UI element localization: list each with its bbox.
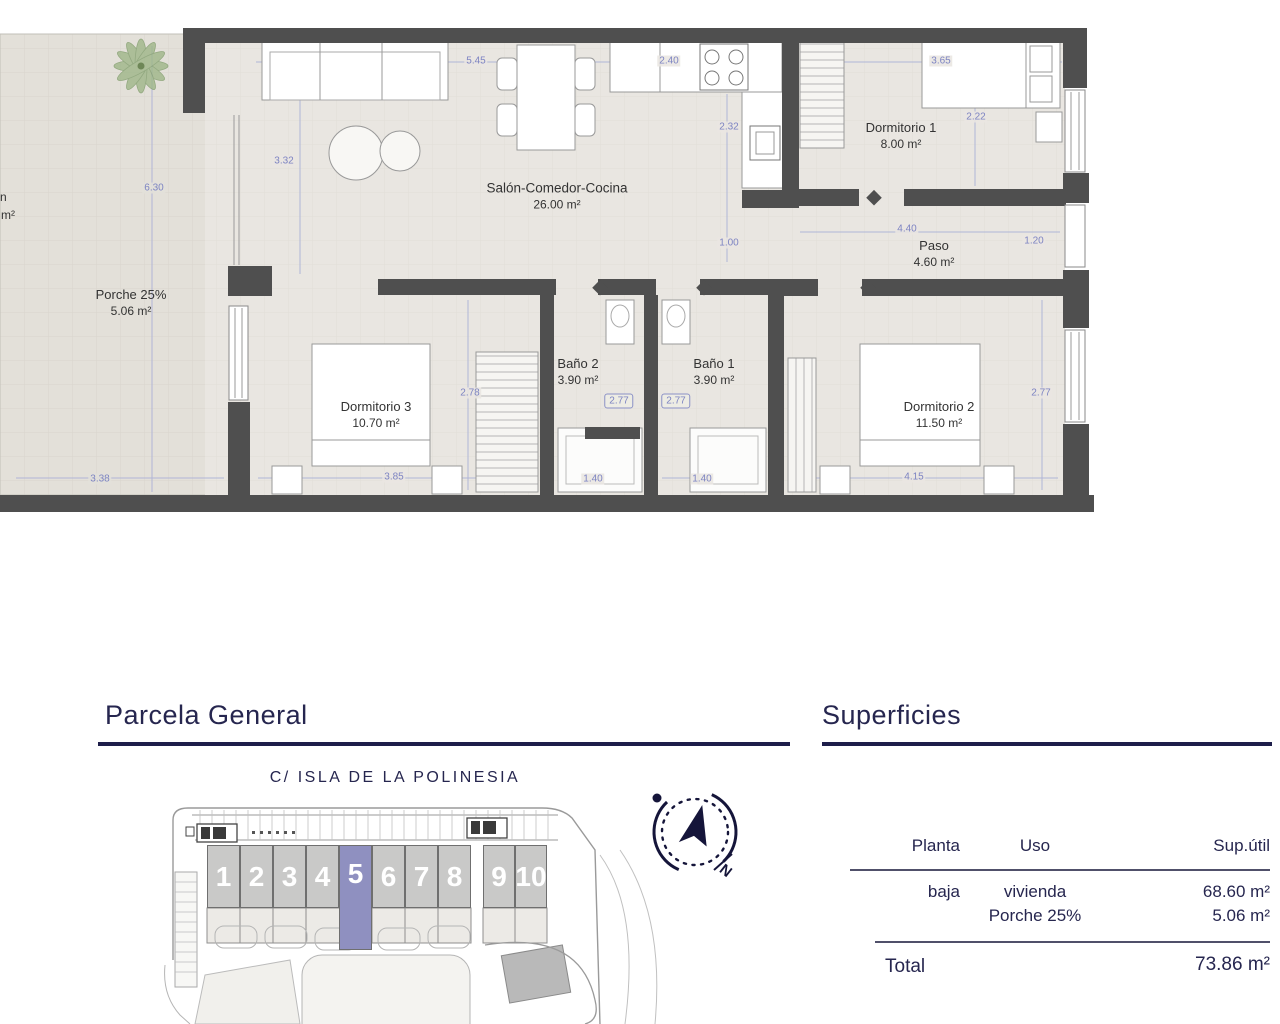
room-label-bano1: Baño 1 3.90 m² [693,356,734,388]
stairs [175,872,197,987]
dim-label: 2.78 [458,388,481,399]
plot-number: 2 [249,861,265,893]
wardrobe-dormitorio2 [788,358,816,492]
plot-2: 2 [240,845,273,908]
parcela-heading: Parcela General [105,700,308,731]
room-area: 4.60 m² [914,255,955,271]
plot-number: 10 [515,861,546,893]
room-area: 3.90 m² [693,373,734,389]
room-name: Paso [914,238,955,255]
dim-label: 2.22 [964,112,987,123]
cell-planta-baja: baja [845,882,960,902]
dim-label: 2.32 [717,122,740,133]
cell-sup-vivienda: 68.60 m² [1160,882,1270,902]
total-label: Total [885,956,925,978]
wardrobe-dormitorio1 [800,42,844,148]
sofa [262,42,448,100]
plot-number: 5 [348,858,364,890]
room-area: 11.50 m² [904,416,975,432]
table-header-rule [850,869,1270,871]
room-area: 26.00 m² [486,197,627,213]
plot-number: 9 [491,861,507,893]
room-label-porche: Porche 25% 5.06 m² [96,287,167,319]
pool [501,945,570,1003]
plot-1: 1 [207,845,240,908]
dim-label: 1.20 [1022,236,1045,247]
dim-label: 1.40 [690,474,713,485]
plot-9: 9 [483,845,515,908]
plot-7: 7 [405,845,438,908]
dim-label: 3.65 [929,56,952,67]
room-name: Dormitorio 2 [904,399,975,416]
plot-10: 10 [515,845,547,908]
room-label-bano2: Baño 2 3.90 m² [557,356,598,388]
plot-number: 8 [447,861,463,893]
col-header-sup: Sup.útil [1160,836,1270,856]
room-name: Dormitorio 1 [866,120,937,137]
plot-3: 3 [273,845,306,908]
round-table [380,131,420,171]
cell-sup-porche: 5.06 m² [1160,906,1270,926]
room-label-paso: Paso 4.60 m² [914,238,955,270]
room-name: Salón-Comedor-Cocina [486,179,627,197]
room-name: Baño 2 [557,356,598,373]
room-area: 10.70 m² [341,416,412,432]
round-table [329,126,383,180]
col-header-uso: Uso [975,836,1095,856]
dim-label: 2.77 [661,394,690,409]
table-total-rule [875,941,1270,943]
entrance-structures [186,818,507,842]
plot-8: 8 [438,845,471,908]
dim-label: 5.45 [464,56,487,67]
dim-label: 2.77 [1029,388,1052,399]
dim-label: 3.85 [382,472,405,483]
parcela-rule [98,742,790,746]
compass-icon: N [641,778,750,887]
room-label-salon: Salón-Comedor-Cocina 26.00 m² [486,179,627,212]
dim-label: 4.40 [895,224,918,235]
plot-number: 3 [282,861,298,893]
room-area: 8.00 m² [866,137,937,153]
room-label-dormitorio3: Dormitorio 3 10.70 m² [341,399,412,431]
dim-label: 3.32 [272,156,295,167]
room-area: 3.90 m² [557,373,598,389]
dim-label: 1.00 [717,238,740,249]
cell-uso-vivienda: vivienda [975,882,1095,902]
room-label-dormitorio1: Dormitorio 1 8.00 m² [866,120,937,152]
room-name: Baño 1 [693,356,734,373]
plot-number: 1 [216,861,232,893]
superficies-heading: Superficies [822,700,961,731]
room-area: 5.06 m² [96,304,167,320]
cell-uso-porche: Porche 25% [975,906,1095,926]
plot-5-highlighted: 5 [339,845,372,950]
plot-4: 4 [306,845,339,908]
col-header-planta: Planta [845,836,960,856]
dim-label: 2.77 [604,394,633,409]
superficies-rule [822,742,1272,746]
plot-number: 4 [315,861,331,893]
dim-label: 2.40 [657,56,680,67]
floor-plan-page: Salón-Comedor-Cocina 26.00 m² Dormitorio… [0,0,1280,1024]
plot-number: 6 [381,861,397,893]
compass-n-label: N [716,861,735,881]
cropped-left-label: m² [1,208,15,222]
dim-label: 3.38 [88,474,111,485]
room-name: Porche 25% [96,287,167,304]
room-name: Dormitorio 3 [341,399,412,416]
room-label-dormitorio2: Dormitorio 2 11.50 m² [904,399,975,431]
dim-label: 6.30 [142,183,165,194]
plot-number: 7 [414,861,430,893]
wardrobe-dormitorio3 [476,352,538,492]
plot-6: 6 [372,845,405,908]
total-value: 73.86 m² [1160,954,1270,976]
cropped-left-label: n [0,190,7,204]
dim-label: 4.15 [902,472,925,483]
dim-label: 1.40 [581,474,604,485]
floor-plan-drawing [0,0,1280,665]
